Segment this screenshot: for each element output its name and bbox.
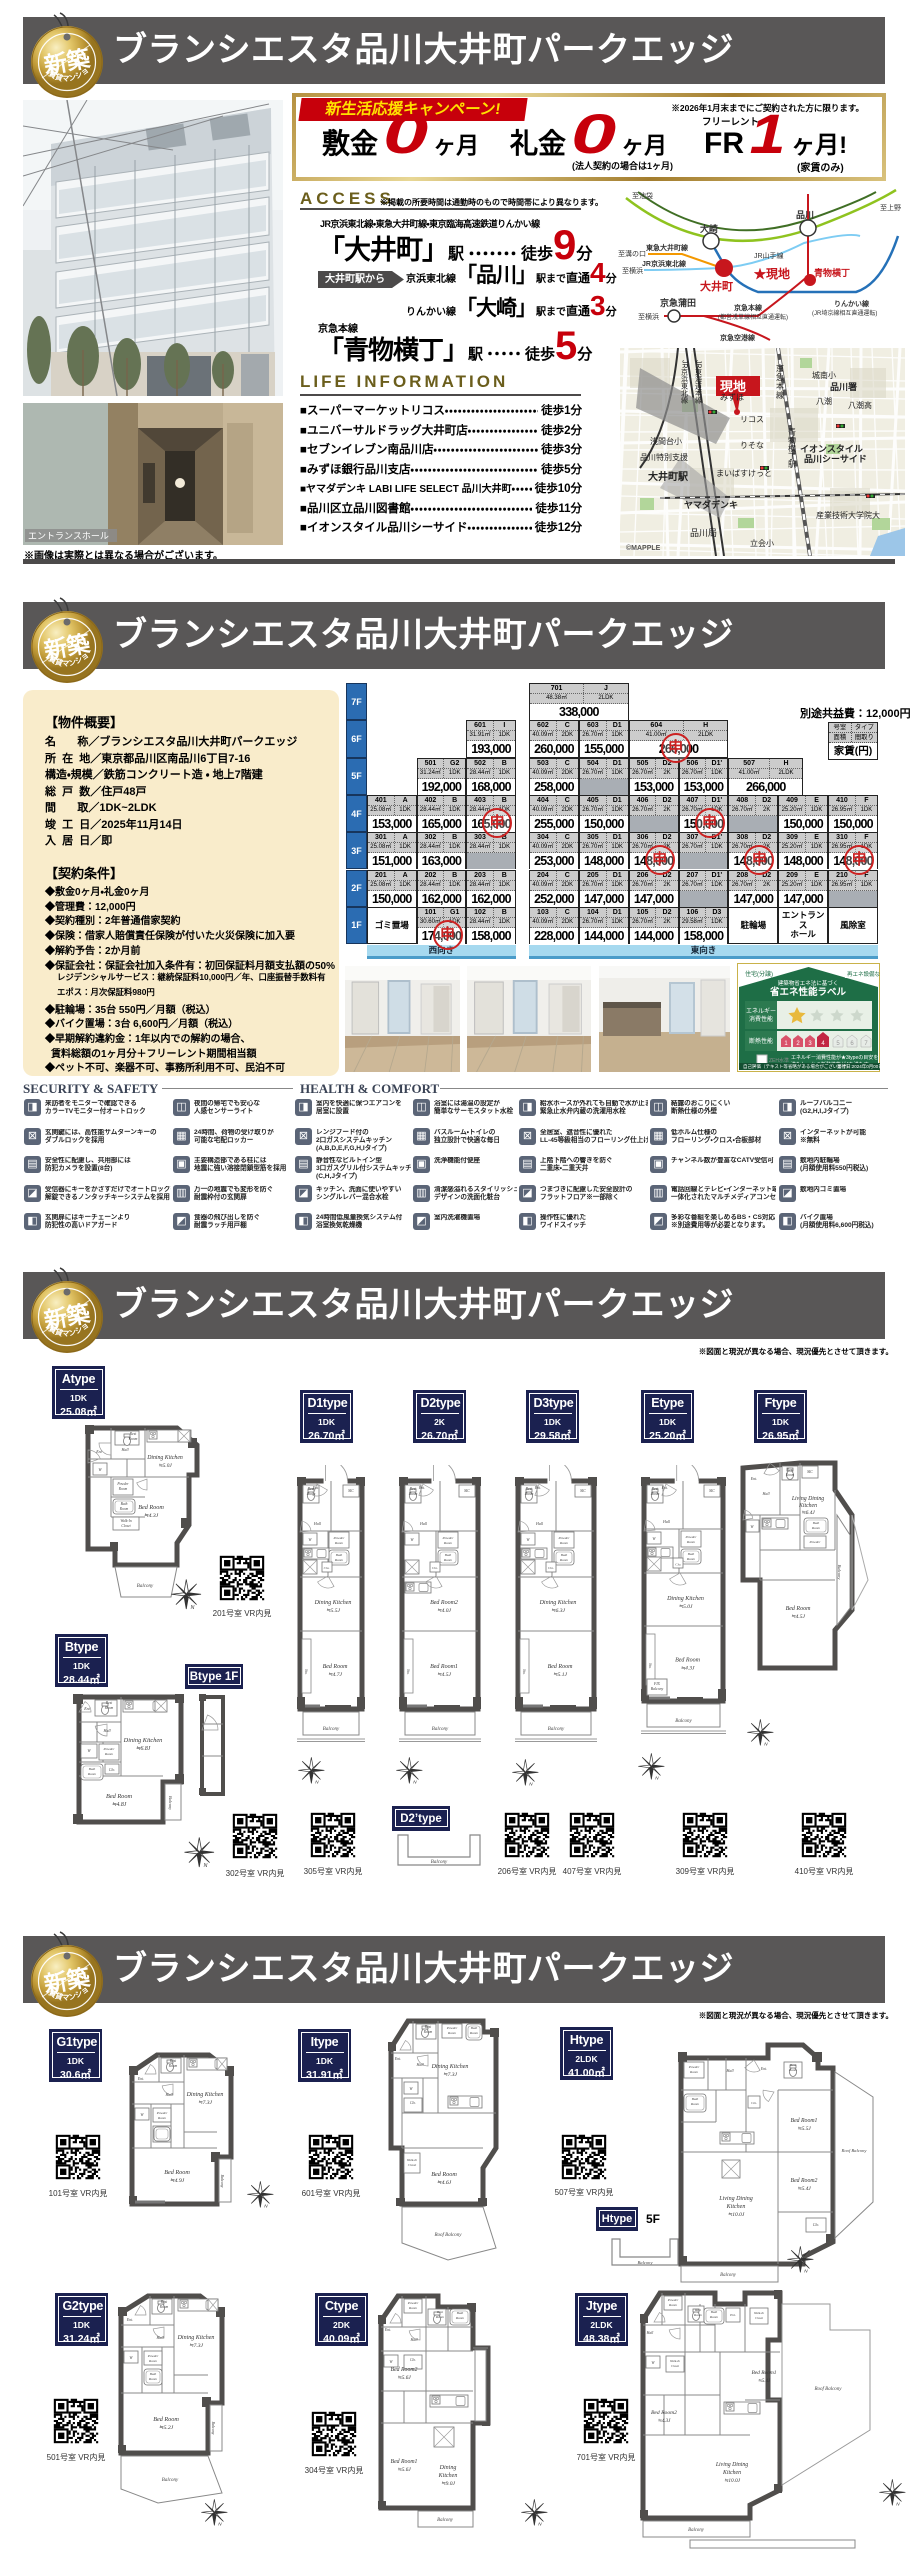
svg-text:Hall: Hall bbox=[725, 2068, 734, 2073]
svg-text:Living Dining: Living Dining bbox=[715, 2462, 748, 2468]
svg-text:Balcony: Balcony bbox=[323, 1727, 340, 1732]
svg-text:Room: Room bbox=[788, 2068, 798, 2072]
svg-text:Rest: Rest bbox=[525, 1487, 533, 1491]
svg-text:京急蒲田: 京急蒲田 bbox=[660, 297, 696, 308]
svg-text:Hall: Hall bbox=[102, 1728, 111, 1733]
svg-text:≒4.8J: ≒4.8J bbox=[112, 1801, 127, 1808]
svg-text:Balcony: Balcony bbox=[548, 1727, 565, 1732]
svg-text:品川局: 品川局 bbox=[690, 528, 717, 538]
svg-text:Balcony: Balcony bbox=[431, 1860, 448, 1865]
svg-text:Clo.: Clo. bbox=[432, 1566, 438, 1570]
svg-text:≒5.2J: ≒5.2J bbox=[159, 2425, 174, 2431]
svg-text:Ent.: Ent. bbox=[661, 1486, 668, 1490]
svg-text:Bed Room2: Bed Room2 bbox=[791, 2178, 818, 2184]
svg-text:≒5.4J: ≒5.4J bbox=[758, 2378, 771, 2384]
svg-text:Ent.: Ent. bbox=[750, 1476, 758, 1481]
svg-text:現地: 現地 bbox=[720, 379, 746, 394]
svg-text:Dining Kitchen: Dining Kitchen bbox=[314, 1600, 352, 1606]
svg-text:Roof Balcony: Roof Balcony bbox=[433, 2233, 462, 2238]
svg-text:★現地: ★現地 bbox=[754, 266, 790, 281]
svg-text:Room: Room bbox=[334, 1558, 344, 1562]
svg-text:Walk-In: Walk-In bbox=[754, 2311, 764, 2315]
svg-text:再エネ設備なし: 再エネ設備なし bbox=[847, 970, 880, 978]
svg-text:≒9.0J: ≒9.0J bbox=[441, 2481, 455, 2487]
svg-text:JR山手線: JR山手線 bbox=[754, 251, 784, 260]
svg-text:≒4.9J: ≒4.9J bbox=[170, 2178, 185, 2184]
svg-text:Ent.: Ent. bbox=[760, 2067, 767, 2071]
svg-text:Powder: Powder bbox=[147, 2354, 159, 2358]
svg-text:Bed Room1: Bed Room1 bbox=[791, 2118, 818, 2124]
svg-text:Room: Room bbox=[408, 1492, 418, 1496]
svg-text:Bath: Bath bbox=[692, 2097, 699, 2101]
svg-text:Ent: Ent bbox=[83, 1706, 90, 1711]
svg-text:≒5.6J: ≒5.6J bbox=[397, 2375, 411, 2381]
svg-text:Room: Room bbox=[104, 1706, 114, 1710]
svg-text:Hall: Hall bbox=[164, 2092, 173, 2097]
svg-text:Sto.: Sto. bbox=[304, 1669, 308, 1675]
svg-text:Room: Room bbox=[435, 2315, 445, 2319]
svg-text:Clo.: Clo. bbox=[324, 1566, 330, 1570]
svg-text:Powder: Powder bbox=[156, 2111, 168, 2115]
svg-text:JR京浜東北線: JR京浜東北線 bbox=[681, 360, 689, 405]
svg-text:Roof Balcony: Roof Balcony bbox=[813, 2387, 842, 2392]
svg-text:Ent.: Ent. bbox=[137, 2077, 144, 2081]
svg-text:建築物省エネ法に基づく: 建築物省エネ法に基づく bbox=[778, 979, 839, 987]
svg-text:Clo.: Clo. bbox=[109, 1768, 115, 1772]
svg-text:Room: Room bbox=[811, 1526, 821, 1530]
svg-text:Rest: Rest bbox=[129, 1432, 137, 1436]
svg-text:八潮: 八潮 bbox=[816, 396, 832, 406]
svg-text:Hall: Hall bbox=[313, 1521, 322, 1526]
svg-text:Balcony: Balcony bbox=[651, 1687, 664, 1691]
svg-text:Dining: Dining bbox=[439, 2465, 457, 2471]
svg-text:Balcony: Balcony bbox=[168, 1796, 173, 1810]
svg-text:Powder: Powder bbox=[667, 2298, 679, 2302]
svg-text:至池袋: 至池袋 bbox=[632, 191, 653, 200]
svg-text:Room: Room bbox=[157, 2116, 166, 2120]
svg-text:住宅(分譲): 住宅(分譲) bbox=[745, 970, 773, 978]
svg-text:Bed Room: Bed Room bbox=[153, 2416, 179, 2423]
svg-text:Room: Room bbox=[686, 1557, 696, 1561]
svg-text:Balcony: Balcony bbox=[437, 2518, 454, 2523]
svg-text:Room: Room bbox=[447, 2031, 456, 2035]
svg-text:≒4.0J: ≒4.0J bbox=[437, 1607, 451, 1614]
svg-text:Sto.: Sto. bbox=[522, 1669, 526, 1675]
svg-text:Kitchen: Kitchen bbox=[438, 2473, 458, 2479]
svg-text:Bath: Bath bbox=[813, 1521, 820, 1525]
svg-text:Bed Room2: Bed Room2 bbox=[651, 2410, 677, 2416]
svg-text:Bed Room: Bed Room bbox=[431, 2171, 457, 2178]
svg-text:Hall: Hall bbox=[662, 1519, 671, 1524]
svg-text:Room: Room bbox=[455, 2316, 465, 2320]
svg-text:≒7.3J: ≒7.3J bbox=[443, 2072, 457, 2078]
svg-text:Dining Kitchen: Dining Kitchen bbox=[666, 1596, 704, 1602]
svg-text:至上野: 至上野 bbox=[880, 203, 901, 212]
svg-text:Dining Kitchen: Dining Kitchen bbox=[177, 2335, 215, 2341]
svg-text:八潮高: 八潮高 bbox=[848, 400, 872, 410]
svg-text:Powder: Powder bbox=[407, 2301, 419, 2305]
svg-text:©MAPPLE: ©MAPPLE bbox=[626, 544, 661, 552]
svg-text:Room: Room bbox=[119, 1507, 129, 1511]
svg-text:浅間台小: 浅間台小 bbox=[650, 436, 682, 446]
svg-text:Ent.: Ent. bbox=[418, 1486, 425, 1490]
svg-text:Rest: Rest bbox=[694, 2308, 702, 2312]
svg-text:みずほ: みずほ bbox=[720, 392, 744, 402]
svg-text:Balcony: Balcony bbox=[720, 2273, 737, 2278]
svg-text:Powder: Powder bbox=[103, 1747, 116, 1751]
svg-text:Room: Room bbox=[87, 1772, 97, 1776]
svg-text:Balcony: Balcony bbox=[637, 2260, 653, 2265]
svg-text:Room: Room bbox=[559, 1558, 569, 1562]
svg-text:Kitchen: Kitchen bbox=[726, 2204, 746, 2210]
svg-text:城南小: 城南小 bbox=[812, 370, 836, 380]
svg-text:Ent.: Ent. bbox=[729, 2313, 736, 2317]
svg-text:FIX: FIX bbox=[653, 1682, 661, 1686]
svg-text:リコス: リコス bbox=[740, 415, 764, 424]
svg-text:Rest: Rest bbox=[436, 2310, 444, 2314]
svg-text:至溝の口: 至溝の口 bbox=[618, 249, 646, 258]
svg-text:Bed Room: Bed Room bbox=[106, 1793, 133, 1800]
svg-text:エネルギー: エネルギー bbox=[746, 1008, 776, 1015]
svg-text:≒7.3J: ≒7.3J bbox=[198, 2100, 212, 2106]
svg-text:Ent.: Ent. bbox=[394, 2057, 401, 2061]
svg-text:≒7.3J: ≒7.3J bbox=[189, 2343, 203, 2349]
svg-text:Rest: Rest bbox=[786, 1468, 794, 1472]
svg-text:≒4.5J: ≒4.5J bbox=[791, 1613, 805, 1620]
svg-text:Balcony: Balcony bbox=[432, 1727, 449, 1732]
svg-text:≒5.6J: ≒5.6J bbox=[397, 2467, 411, 2473]
svg-text:Bath: Bath bbox=[150, 2372, 157, 2376]
svg-text:Room: Room bbox=[443, 1558, 453, 1562]
svg-text:京急本線: 京急本線 bbox=[734, 303, 763, 312]
svg-text:≒4.3J: ≒4.3J bbox=[681, 1665, 695, 1672]
svg-text:Walk-In: Walk-In bbox=[120, 1519, 131, 1523]
svg-text:Roof Balcony: Roof Balcony bbox=[841, 2148, 868, 2153]
svg-text:JR東海道本線: JR東海道本線 bbox=[695, 360, 703, 405]
svg-text:≒4.3J: ≒4.3J bbox=[144, 1513, 159, 1519]
svg-text:Hall: Hall bbox=[646, 2331, 654, 2335]
svg-text:Dining Kitchen: Dining Kitchen bbox=[539, 1600, 577, 1606]
svg-text:まいばすけっと: まいばすけっと bbox=[716, 469, 772, 478]
svg-text:Bed Room: Bed Room bbox=[138, 1504, 164, 1511]
svg-text:Rest: Rest bbox=[169, 2059, 177, 2063]
svg-text:Ent.: Ent. bbox=[384, 2328, 391, 2332]
svg-text:Room: Room bbox=[693, 2313, 702, 2317]
svg-text:Dining Kitchen: Dining Kitchen bbox=[146, 1455, 183, 1461]
svg-text:Hall: Hall bbox=[155, 2335, 164, 2340]
svg-text:≒10.0J: ≒10.0J bbox=[728, 2212, 745, 2218]
svg-text:Room: Room bbox=[128, 1437, 138, 1441]
svg-text:Room: Room bbox=[785, 1473, 795, 1477]
svg-text:青物横丁: 青物横丁 bbox=[814, 267, 850, 278]
svg-text:Bath: Bath bbox=[471, 2026, 478, 2030]
svg-text:Rest: Rest bbox=[160, 2300, 168, 2304]
svg-text:Bath: Bath bbox=[445, 1553, 452, 1557]
svg-text:≒10.0J: ≒10.0J bbox=[724, 2478, 741, 2484]
svg-text:≒4.3J: ≒4.3J bbox=[658, 2418, 672, 2424]
svg-text:Rest: Rest bbox=[651, 1487, 659, 1491]
svg-text:≒5.0J: ≒5.0J bbox=[679, 1604, 693, 1610]
svg-text:Bed Room: Bed Room bbox=[323, 1664, 348, 1670]
svg-text:Room: Room bbox=[668, 2303, 677, 2307]
svg-text:ヤマダデンキ: ヤマダデンキ bbox=[684, 499, 738, 510]
svg-text:発行日:2024年0月00日: 発行日:2024年0月00日 bbox=[837, 1063, 880, 1070]
svg-text:Balcony: Balcony bbox=[837, 1565, 842, 1580]
svg-text:Bed Room: Bed Room bbox=[548, 1664, 573, 1670]
svg-text:Room: Room bbox=[686, 1540, 696, 1544]
svg-text:≒5.1J: ≒5.1J bbox=[553, 1672, 567, 1678]
svg-text:Hall: Hall bbox=[409, 2337, 418, 2342]
svg-text:Room: Room bbox=[443, 1541, 453, 1545]
svg-text:Closet: Closet bbox=[408, 2163, 417, 2167]
svg-text:Kitchen: Kitchen bbox=[798, 1503, 817, 1509]
svg-text:Bath: Bath bbox=[561, 1553, 568, 1557]
svg-text:Room: Room bbox=[159, 2305, 169, 2309]
svg-text:(JR埼京線相互直通運転): (JR埼京線相互直通運転) bbox=[812, 309, 877, 317]
svg-text:Room: Room bbox=[690, 2102, 700, 2106]
svg-text:Powder: Powder bbox=[685, 1535, 698, 1539]
svg-text:Powder: Powder bbox=[446, 2026, 458, 2030]
svg-text:Hall: Hall bbox=[120, 1447, 129, 1452]
svg-text:Room: Room bbox=[689, 2070, 698, 2074]
svg-text:東急大井町線: 東急大井町線 bbox=[646, 243, 689, 252]
svg-text:Closet: Closet bbox=[671, 2364, 679, 2368]
svg-text:Bed Room: Bed Room bbox=[786, 1606, 811, 1612]
svg-text:Bath: Bath bbox=[711, 2310, 718, 2314]
svg-text:Rest: Rest bbox=[424, 2025, 432, 2029]
svg-text:消費性能: 消費性能 bbox=[749, 1015, 773, 1023]
svg-text:品川シーサイド: 品川シーサイド bbox=[804, 454, 867, 464]
svg-text:産業技術大学院大: 産業技術大学院大 bbox=[816, 510, 880, 520]
svg-text:京急空港線: 京急空港線 bbox=[720, 333, 756, 342]
svg-text:エネルギー消費性能が★3typeの目安を: エネルギー消費性能が★3typeの目安を bbox=[791, 1054, 878, 1061]
svg-text:りんかい線: りんかい線 bbox=[834, 299, 870, 308]
svg-text:Hall: Hall bbox=[419, 1521, 428, 1526]
svg-text:≒6.4J: ≒6.4J bbox=[801, 1510, 815, 1516]
svg-text:大崎: 大崎 bbox=[700, 223, 718, 234]
svg-text:Ent.: Ent. bbox=[534, 1486, 541, 1490]
svg-text:Ent.: Ent. bbox=[312, 1486, 319, 1490]
svg-text:Balcony: Balcony bbox=[675, 1719, 692, 1724]
svg-text:Room: Room bbox=[709, 2315, 719, 2319]
svg-text:Clo.: Clo. bbox=[675, 1562, 681, 1566]
svg-text:大井町: 大井町 bbox=[700, 279, 733, 293]
svg-text:Balcony: Balcony bbox=[162, 2478, 179, 2483]
svg-text:Dining Kitchen: Dining Kitchen bbox=[123, 1737, 163, 1744]
svg-text:Bath: Bath bbox=[89, 1767, 96, 1771]
svg-text:Balcony: Balcony bbox=[211, 2421, 216, 2434]
svg-text:Walk-In: Walk-In bbox=[407, 2158, 418, 2162]
svg-text:Powder: Powder bbox=[688, 2065, 700, 2069]
svg-text:省エネ性能ラベル: 省エネ性能ラベル bbox=[769, 986, 847, 998]
svg-text:Clo.: Clo. bbox=[410, 2101, 416, 2105]
svg-text:≒5.4J: ≒5.4J bbox=[797, 2186, 811, 2192]
svg-text:Closet: Closet bbox=[755, 2316, 763, 2320]
svg-text:Room: Room bbox=[524, 1492, 534, 1496]
svg-text:Rest: Rest bbox=[789, 2063, 797, 2067]
svg-text:≒4.7J: ≒4.7J bbox=[328, 1671, 342, 1678]
svg-text:Living Dining: Living Dining bbox=[718, 2196, 753, 2202]
svg-text:至横浜: 至横浜 bbox=[622, 266, 643, 275]
svg-text:Room: Room bbox=[469, 2031, 479, 2035]
svg-text:Room: Room bbox=[104, 1752, 114, 1756]
svg-text:≒4.6J: ≒4.6J bbox=[437, 2180, 452, 2186]
svg-text:Powder: Powder bbox=[558, 1536, 571, 1540]
svg-text:Hall: Hall bbox=[761, 1491, 770, 1496]
svg-text:Bath: Bath bbox=[688, 1552, 695, 1556]
svg-text:SIC: SIC bbox=[580, 1489, 586, 1493]
svg-text:Sto.: Sto. bbox=[406, 1669, 410, 1675]
svg-text:Kitchen: Kitchen bbox=[722, 2470, 741, 2476]
svg-text:≒6.3J: ≒6.3J bbox=[551, 1608, 565, 1614]
svg-text:JR京浜東北線: JR京浜東北線 bbox=[642, 259, 687, 268]
svg-text:Walk-In: Walk-In bbox=[670, 2359, 680, 2363]
svg-text:Bed Room1: Bed Room1 bbox=[430, 1664, 458, 1670]
svg-text:イオンスタイル: イオンスタイル bbox=[800, 443, 863, 454]
svg-text:Bed Room1: Bed Room1 bbox=[751, 2370, 776, 2376]
svg-text:Bath: Bath bbox=[457, 2311, 464, 2315]
svg-text:Bed Room1: Bed Room1 bbox=[391, 2459, 418, 2465]
svg-text:Bed Room: Bed Room bbox=[675, 1658, 700, 1664]
svg-text:Powder: Powder bbox=[116, 1482, 129, 1486]
svg-text:Bed Room: Bed Room bbox=[164, 2169, 190, 2176]
svg-text:Room: Room bbox=[334, 1541, 344, 1545]
svg-text:≒5.5J: ≒5.5J bbox=[326, 1608, 340, 1614]
svg-text:青物横丁駅: 青物横丁駅 bbox=[788, 427, 797, 469]
svg-text:Bath: Bath bbox=[336, 1553, 343, 1557]
svg-text:Rest: Rest bbox=[409, 1487, 417, 1491]
svg-text:SIC: SIC bbox=[348, 1489, 354, 1493]
svg-text:至横浜: 至横浜 bbox=[638, 312, 659, 321]
svg-text:≒6.8J: ≒6.8J bbox=[136, 1746, 151, 1752]
svg-text:Room: Room bbox=[423, 2030, 433, 2034]
svg-text:Powder: Powder bbox=[809, 1540, 822, 1544]
svg-text:Bath: Bath bbox=[121, 1502, 128, 1506]
svg-text:Hall: Hall bbox=[535, 1521, 544, 1526]
svg-text:(都営浅草線相互直通運転): (都営浅草線相互直通運転) bbox=[718, 313, 788, 321]
svg-text:Balcony: Balcony bbox=[137, 1584, 154, 1589]
svg-text:Balcony: Balcony bbox=[220, 2174, 225, 2187]
svg-text:≒5.0J: ≒5.0J bbox=[158, 1463, 172, 1469]
svg-text:SIC: SIC bbox=[807, 1470, 813, 1474]
svg-text:Bed Room2: Bed Room2 bbox=[391, 2367, 418, 2373]
svg-text:Room: Room bbox=[559, 1541, 569, 1545]
svg-text:Balcony: Balcony bbox=[688, 2528, 705, 2533]
svg-text:Ent: Ent bbox=[95, 1449, 102, 1454]
svg-text:ZEH水準: ZEH水準 bbox=[769, 1057, 789, 1064]
svg-text:Room: Room bbox=[148, 2377, 158, 2381]
svg-text:Sto.: Sto. bbox=[648, 1663, 652, 1669]
svg-text:Ent.: Ent. bbox=[126, 2318, 133, 2322]
svg-text:Closet: Closet bbox=[121, 1524, 131, 1528]
svg-text:SIC: SIC bbox=[464, 1489, 470, 1493]
svg-text:Room: Room bbox=[168, 2064, 178, 2068]
svg-text:品川特別支援: 品川特別支援 bbox=[640, 452, 688, 462]
svg-text:SIC: SIC bbox=[709, 1489, 715, 1493]
svg-text:Clo.: Clo. bbox=[548, 1566, 554, 1570]
svg-text:品川署: 品川署 bbox=[830, 381, 857, 392]
svg-text:りそな: りそな bbox=[740, 441, 764, 450]
svg-text:Powder: Powder bbox=[442, 1536, 455, 1540]
svg-text:Clo.: Clo. bbox=[751, 2101, 757, 2105]
svg-text:Clo.: Clo. bbox=[410, 2358, 416, 2362]
svg-text:立会小: 立会小 bbox=[750, 538, 774, 548]
svg-text:Clo.: Clo. bbox=[813, 2223, 819, 2227]
svg-text:自己評価（テキスト等省略がある場合がございます）: 自己評価（テキスト等省略がある場合がございます） bbox=[743, 1063, 851, 1070]
svg-text:大井町駅: 大井町駅 bbox=[648, 470, 689, 483]
svg-text:Dining Kitchen: Dining Kitchen bbox=[431, 2064, 469, 2070]
svg-text:Powder: Powder bbox=[333, 1536, 346, 1540]
svg-text:Room: Room bbox=[148, 2359, 157, 2363]
svg-text:Rest: Rest bbox=[105, 1701, 113, 1705]
svg-text:品川: 品川 bbox=[796, 210, 814, 220]
svg-text:Bed Room2: Bed Room2 bbox=[430, 1600, 458, 1606]
svg-text:Room: Room bbox=[118, 1487, 128, 1491]
svg-text:Hall: Hall bbox=[415, 2062, 424, 2067]
svg-text:京急本線: 京急本線 bbox=[776, 364, 785, 400]
svg-text:Room: Room bbox=[650, 1492, 660, 1496]
svg-text:エントランスホール: エントランスホール bbox=[28, 531, 109, 541]
svg-text:Living Dining: Living Dining bbox=[791, 1496, 824, 1502]
svg-text:Room: Room bbox=[408, 2306, 417, 2310]
svg-text:≒5.5J: ≒5.5J bbox=[797, 2126, 811, 2132]
svg-text:Dining Kitchen: Dining Kitchen bbox=[186, 2092, 224, 2098]
svg-text:≒4.5J: ≒4.5J bbox=[437, 1671, 451, 1678]
svg-text:断熱性能: 断熱性能 bbox=[749, 1037, 773, 1045]
